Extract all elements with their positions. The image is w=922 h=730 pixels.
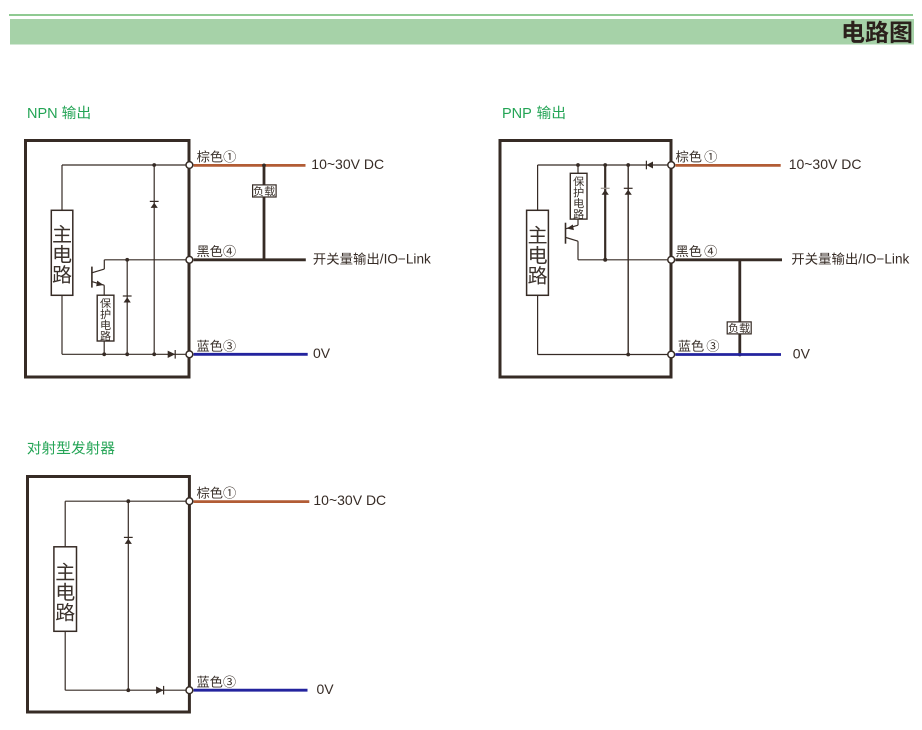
svg-text:0V: 0V (317, 681, 335, 697)
svg-text:/IO−Link: /IO−Link (858, 252, 909, 267)
svg-text:/IO−Link: /IO−Link (380, 252, 431, 267)
svg-text:0V: 0V (793, 345, 811, 361)
svg-text:NPN: NPN (27, 106, 58, 122)
svg-text:10~30V DC: 10~30V DC (789, 156, 862, 172)
svg-text:PNP: PNP (502, 106, 532, 122)
svg-text:10~30V DC: 10~30V DC (313, 492, 386, 508)
svg-text:0V: 0V (313, 345, 331, 361)
svg-text:10~30V DC: 10~30V DC (311, 156, 384, 172)
